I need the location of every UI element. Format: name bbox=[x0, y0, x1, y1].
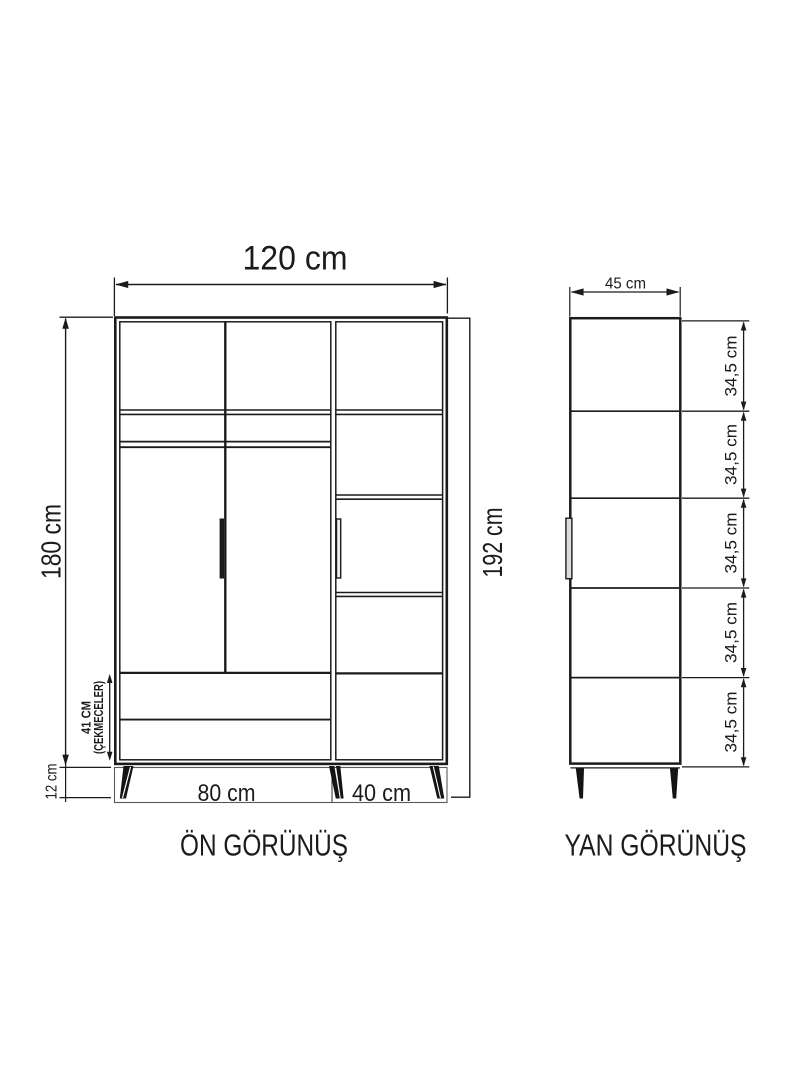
svg-text:34,5 cm: 34,5 cm bbox=[722, 513, 741, 574]
svg-text:34,5 cm: 34,5 cm bbox=[722, 602, 741, 663]
svg-text:ÖN GÖRÜNÜŞ: ÖN GÖRÜNÜŞ bbox=[180, 829, 348, 863]
svg-text:(ÇEKMECELER): (ÇEKMECELER) bbox=[91, 681, 106, 754]
svg-text:34,5 cm: 34,5 cm bbox=[722, 336, 741, 397]
svg-text:34,5 cm: 34,5 cm bbox=[722, 424, 741, 485]
svg-text:12 cm: 12 cm bbox=[44, 764, 61, 800]
svg-text:180 cm: 180 cm bbox=[36, 504, 67, 579]
svg-text:40 cm: 40 cm bbox=[352, 780, 411, 807]
svg-text:80 cm: 80 cm bbox=[198, 780, 256, 807]
svg-text:192 cm: 192 cm bbox=[477, 508, 508, 578]
svg-text:120 cm: 120 cm bbox=[243, 240, 348, 278]
svg-text:YAN GÖRÜNÜŞ: YAN GÖRÜNÜŞ bbox=[565, 829, 747, 863]
svg-text:34,5 cm: 34,5 cm bbox=[722, 692, 741, 753]
svg-text:45 cm: 45 cm bbox=[605, 276, 646, 293]
